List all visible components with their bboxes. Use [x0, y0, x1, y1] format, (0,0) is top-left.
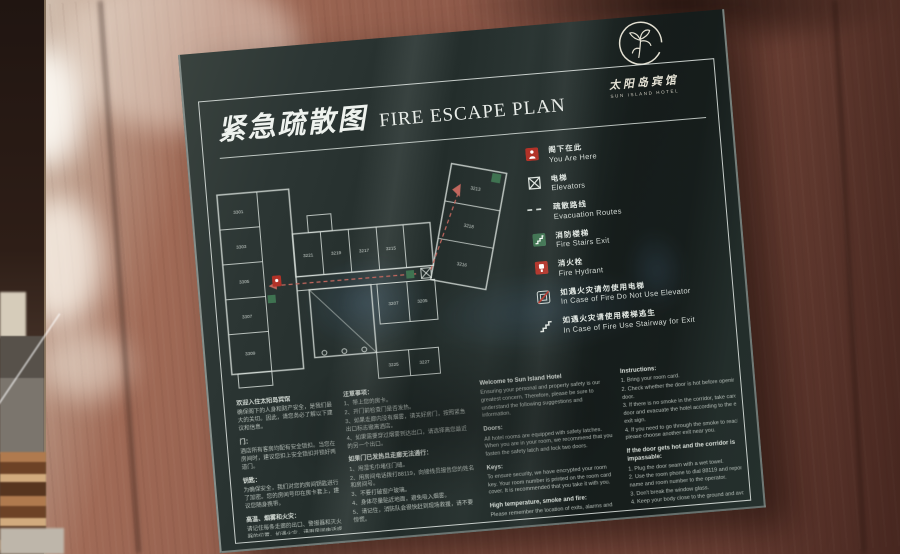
svg-text:3225: 3225	[388, 362, 399, 368]
background-object	[0, 336, 44, 378]
svg-text:3207: 3207	[388, 300, 399, 306]
svg-text:3305: 3305	[239, 279, 250, 285]
svg-text:3219: 3219	[331, 250, 342, 256]
floor-plan: 3301 3303 3305 3307 3309 3221 3219 3217 …	[206, 141, 526, 395]
title-zh: 紧急疏散图	[216, 96, 369, 148]
zh-sections: 门：酒店所有客房均配有安全锁扣。当您在房间时，建议您扣上安全锁扣并锁好两道门。钥…	[239, 431, 343, 538]
svg-text:3217: 3217	[359, 248, 370, 254]
fire-stairs-marker	[491, 173, 501, 183]
fire-hydrant-icon	[531, 260, 550, 275]
notes-zh-column: 欢迎入住太阳岛宾馆 确保阁下的人身和财产安全，是我们最大的关切。因此，请您务必了…	[236, 392, 343, 538]
sign-frame: 紧急疏散图 FIRE ESCAPE PLAN	[198, 58, 751, 544]
no-elevator-icon	[534, 288, 553, 304]
window-reflection	[40, 330, 130, 400]
instructions-en-column: Instructions: 1. Bring your room card.2.…	[620, 359, 744, 506]
svg-text:3221: 3221	[303, 252, 314, 258]
svg-text:3307: 3307	[242, 314, 253, 320]
use-stairway-icon	[536, 316, 555, 332]
svg-text:3215: 3215	[386, 245, 397, 251]
title-en: FIRE ESCAPE PLAN	[378, 95, 566, 133]
background-object	[0, 336, 44, 454]
floor	[0, 528, 64, 554]
svg-text:3303: 3303	[236, 244, 247, 250]
fire-stairs-icon	[529, 231, 548, 246]
photo-scene: 太阳岛宾馆 SUN ISLAND HOTEL 紧急疏散图 FIRE ESCAPE…	[0, 0, 900, 554]
elevator-icon	[524, 174, 543, 189]
instructions-zh-column: 注意事项： 1、带上您的房卡。2、开门前检查门是否发热。3、如果走廊内没有烟雾，…	[343, 381, 480, 529]
svg-text:3216: 3216	[456, 261, 467, 268]
svg-text:3301: 3301	[233, 209, 244, 215]
svg-text:3227: 3227	[419, 359, 430, 365]
you-are-here-marker	[272, 275, 282, 287]
sign-title: 紧急疏散图 FIRE ESCAPE PLAN	[216, 80, 567, 149]
fire-escape-sign: 太阳岛宾馆 SUN ISLAND HOTEL 紧急疏散图 FIRE ESCAPE…	[178, 9, 766, 553]
svg-text:3218: 3218	[463, 223, 474, 230]
evacuation-route-icon	[527, 203, 546, 215]
legend-item-use-stairway: 如遇火灾请使用楼梯逃生In Case of Fire Use Stairway …	[536, 302, 733, 338]
fire-stairs-marker	[267, 295, 276, 304]
svg-text:3309: 3309	[245, 351, 256, 357]
notes-en-column: Welcome to Sun Island Hotel Ensuring you…	[479, 369, 620, 517]
you-are-here-icon	[522, 146, 541, 161]
svg-text:3213: 3213	[470, 185, 481, 192]
en-sections: Doors:All hotel rooms are equipped with …	[483, 415, 620, 517]
fire-stairs-marker	[406, 270, 415, 279]
svg-text:3205: 3205	[417, 298, 428, 304]
legend: 阁下在此You Are Here 电梯Elevators 疏散路线Evacuat…	[522, 131, 733, 337]
background-object	[0, 292, 26, 338]
